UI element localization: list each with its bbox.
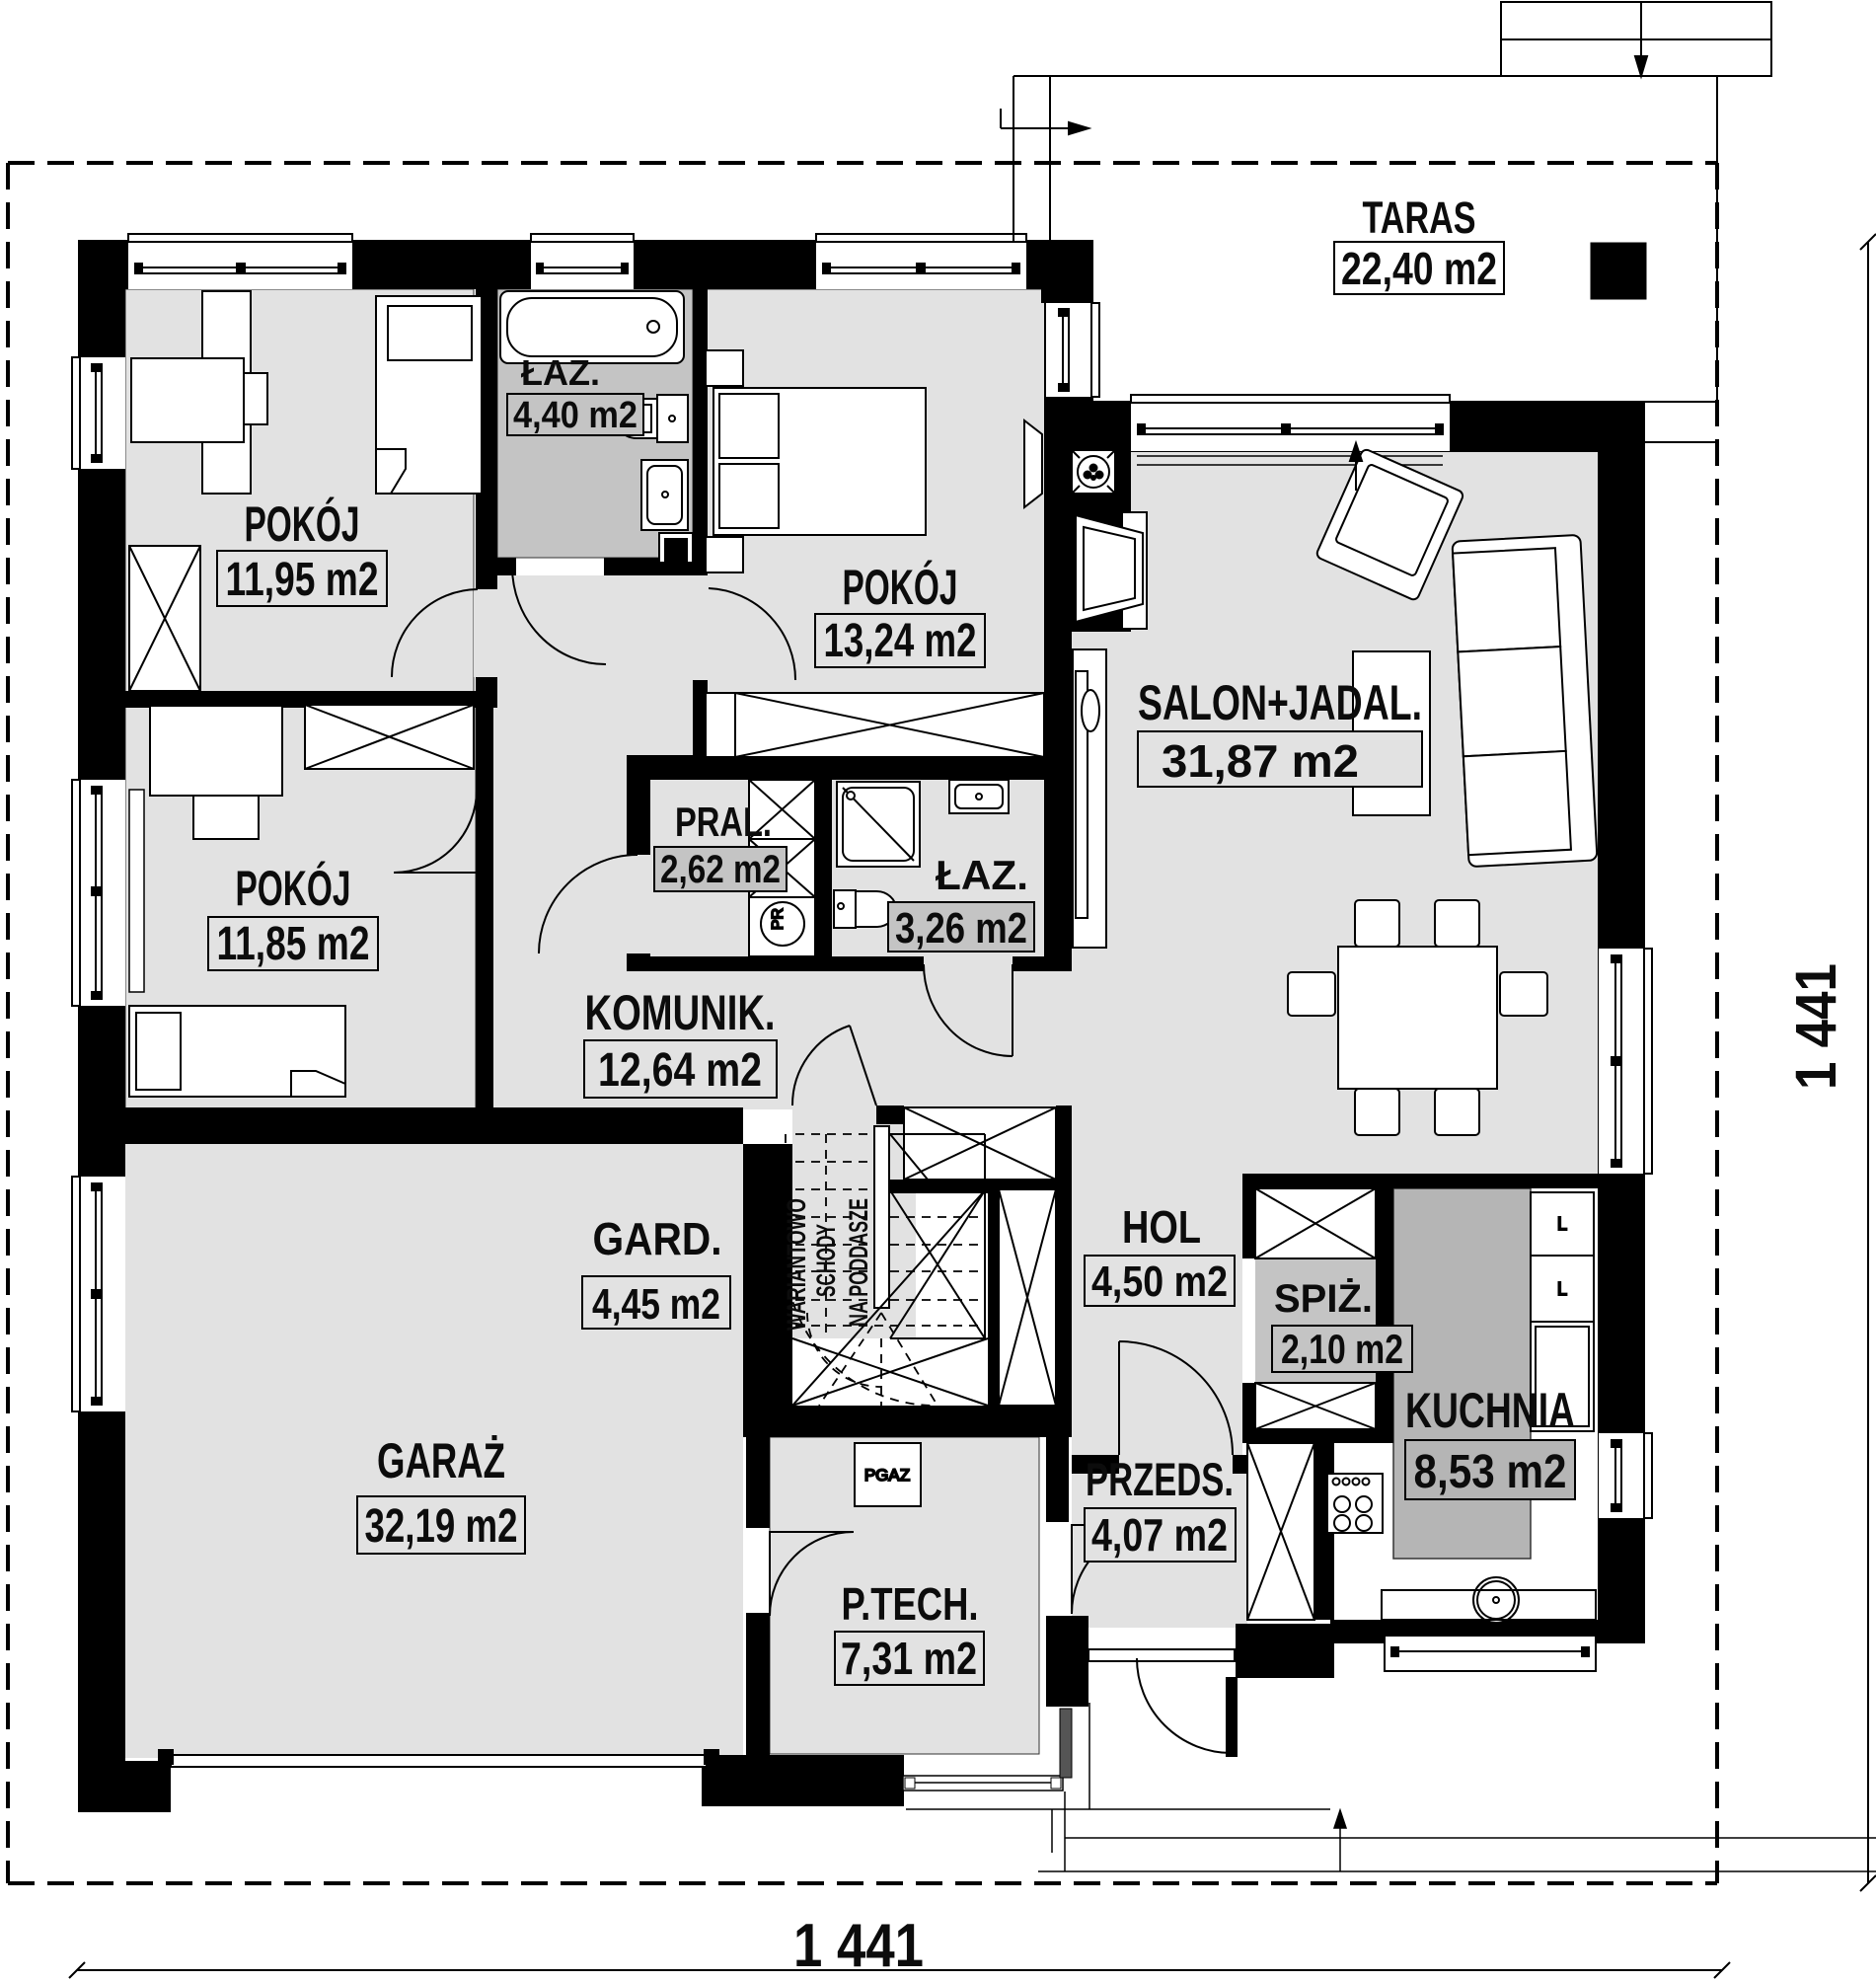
svg-text:POKÓJ: POKÓJ [236, 861, 351, 916]
svg-text:KUCHNIA: KUCHNIA [1405, 1383, 1575, 1438]
svg-text:L: L [1557, 1279, 1567, 1299]
svg-text:4,40 m2: 4,40 m2 [513, 395, 638, 436]
svg-text:22,40 m2: 22,40 m2 [1341, 243, 1497, 294]
svg-text:SPIŻ.: SPIŻ. [1274, 1277, 1373, 1321]
svg-text:KOMUNIK.: KOMUNIK. [585, 985, 776, 1040]
svg-text:8,53 m2: 8,53 m2 [1414, 1446, 1567, 1498]
svg-text:1 441: 1 441 [793, 1912, 924, 1980]
svg-text:PRZEDS.: PRZEDS. [1086, 1453, 1234, 1505]
svg-text:7,31 m2: 7,31 m2 [841, 1633, 977, 1684]
svg-text:GARAŻ: GARAŻ [377, 1433, 505, 1488]
svg-text:ŁAZ.: ŁAZ. [936, 852, 1028, 898]
svg-text:4,45 m2: 4,45 m2 [592, 1280, 720, 1329]
svg-text:PR: PR [770, 908, 787, 930]
svg-text:ŁAZ.: ŁAZ. [521, 352, 600, 393]
svg-text:PRAL.: PRAL. [675, 799, 772, 845]
svg-text:11,85 m2: 11,85 m2 [217, 918, 370, 970]
svg-text:4,50 m2: 4,50 m2 [1091, 1258, 1228, 1306]
svg-text:PGAZ: PGAZ [864, 1466, 910, 1485]
svg-text:HOL: HOL [1122, 1201, 1201, 1253]
svg-text:SALON+JADAL.: SALON+JADAL. [1138, 675, 1422, 730]
svg-text:31,87 m2: 31,87 m2 [1162, 735, 1359, 787]
svg-text:GARD.: GARD. [593, 1213, 722, 1264]
svg-text:POKÓJ: POKÓJ [245, 496, 360, 552]
svg-text:NA PODDASZE: NA PODDASZE [844, 1198, 873, 1327]
svg-text:32,19 m2: 32,19 m2 [365, 1500, 518, 1553]
svg-text:WARIANTOWO: WARIANTOWO [782, 1198, 811, 1331]
svg-text:11,95 m2: 11,95 m2 [226, 554, 379, 606]
svg-text:TARAS: TARAS [1363, 192, 1476, 243]
svg-text:SCHODY: SCHODY [811, 1224, 841, 1297]
svg-text:L: L [1557, 1214, 1567, 1234]
svg-text:4,07 m2: 4,07 m2 [1091, 1509, 1228, 1561]
svg-text:P.TECH.: P.TECH. [842, 1578, 979, 1630]
svg-text:2,10 m2: 2,10 m2 [1281, 1326, 1403, 1372]
svg-text:12,64 m2: 12,64 m2 [598, 1044, 762, 1097]
svg-text:13,24 m2: 13,24 m2 [824, 615, 977, 667]
svg-text:2,62 m2: 2,62 m2 [660, 848, 781, 891]
svg-text:POKÓJ: POKÓJ [843, 560, 958, 615]
svg-text:1 441: 1 441 [1784, 963, 1848, 1090]
svg-text:3,26 m2: 3,26 m2 [895, 904, 1027, 953]
